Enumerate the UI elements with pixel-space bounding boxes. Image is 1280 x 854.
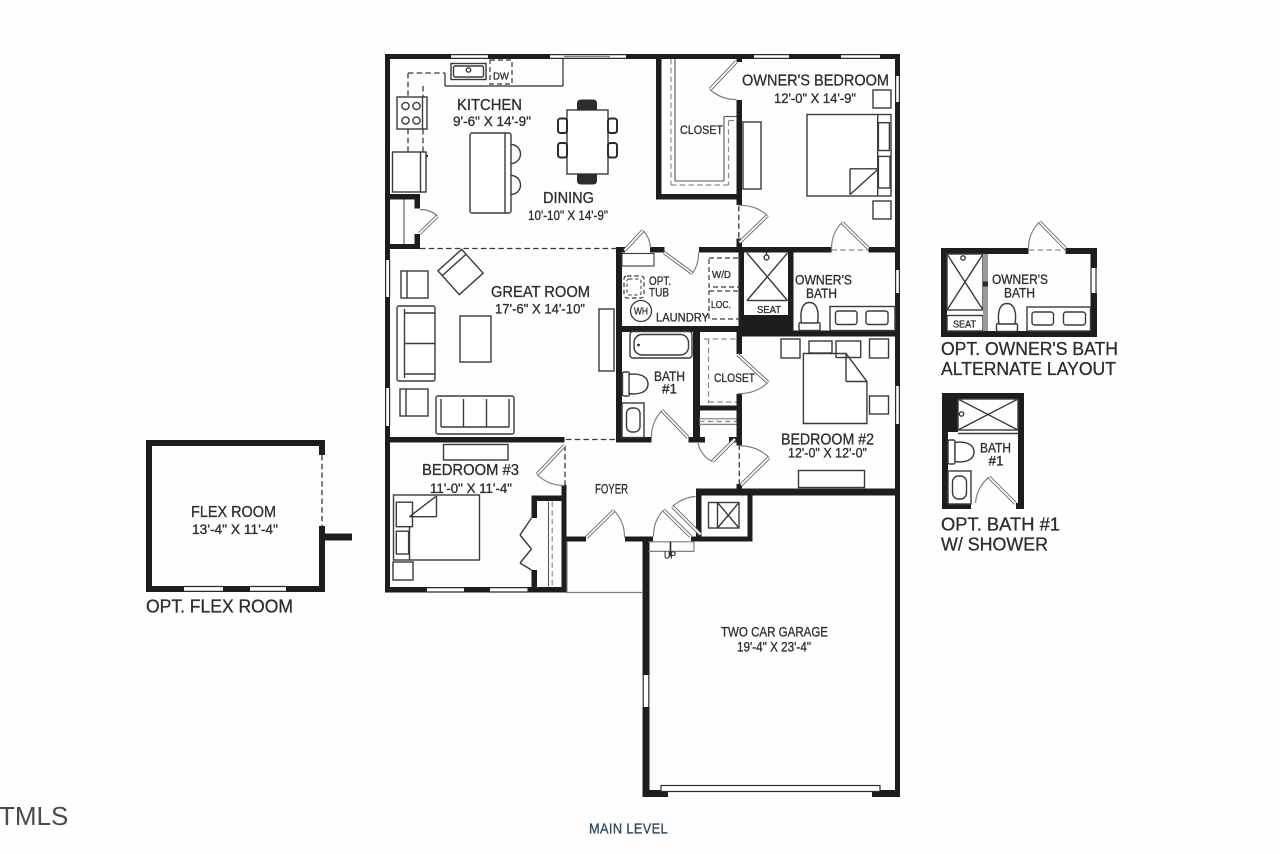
- svg-text:SEAT: SEAT: [953, 320, 976, 331]
- svg-text:BATH: BATH: [806, 286, 837, 301]
- svg-text:17'-6" X 14'-10": 17'-6" X 14'-10": [495, 302, 585, 317]
- svg-text:ALTERNATE LAYOUT: ALTERNATE LAYOUT: [941, 358, 1116, 379]
- svg-text:WH: WH: [634, 307, 648, 318]
- svg-text:W/D: W/D: [712, 270, 731, 281]
- svg-text:TWO CAR GARAGE: TWO CAR GARAGE: [721, 625, 828, 640]
- svg-text:GREAT ROOM: GREAT ROOM: [491, 284, 590, 301]
- svg-text:SEAT: SEAT: [757, 305, 781, 316]
- svg-text:FOYER: FOYER: [595, 482, 628, 497]
- svg-text:OWNER'S BEDROOM: OWNER'S BEDROOM: [742, 73, 889, 90]
- svg-text:MAIN LEVEL: MAIN LEVEL: [589, 822, 668, 838]
- svg-text:19'-4" X 23'-4": 19'-4" X 23'-4": [737, 640, 811, 655]
- svg-text:UP: UP: [664, 551, 676, 562]
- svg-text:CLOSET: CLOSET: [680, 123, 724, 137]
- svg-text:W/ SHOWER: W/ SHOWER: [941, 534, 1048, 555]
- svg-text:#1: #1: [662, 382, 677, 397]
- svg-text:9'-6" X 14'-9": 9'-6" X 14'-9": [453, 114, 531, 129]
- svg-text:LAUNDRY: LAUNDRY: [656, 311, 709, 325]
- svg-text:BATH: BATH: [1004, 286, 1035, 301]
- svg-text:BEDROOM #3: BEDROOM #3: [422, 462, 519, 479]
- svg-text:TMLS: TMLS: [0, 801, 68, 831]
- svg-text:DW: DW: [493, 72, 510, 83]
- svg-text:LOC.: LOC.: [711, 300, 731, 311]
- svg-text:TUB: TUB: [649, 286, 669, 300]
- svg-text:10'-10" X 14'-9": 10'-10" X 14'-9": [528, 208, 608, 223]
- svg-text:CLOSET: CLOSET: [714, 371, 756, 385]
- svg-text:13'-4" X 11'-4": 13'-4" X 11'-4": [192, 522, 278, 537]
- svg-text:OPT. FLEX ROOM: OPT. FLEX ROOM: [146, 596, 293, 617]
- svg-text:OPT. BATH #1: OPT. BATH #1: [941, 514, 1060, 535]
- svg-text:12'-0" X 14'-9": 12'-0" X 14'-9": [774, 91, 856, 106]
- svg-text:OPT. OWNER'S BATH: OPT. OWNER'S BATH: [941, 338, 1118, 359]
- svg-text:KITCHEN: KITCHEN: [457, 97, 522, 114]
- svg-text:FLEX ROOM: FLEX ROOM: [191, 504, 276, 521]
- svg-text:11'-0" X 11'-4": 11'-0" X 11'-4": [430, 481, 512, 496]
- svg-text:#1: #1: [989, 454, 1004, 469]
- svg-text:12'-0" X 12'-0": 12'-0" X 12'-0": [788, 446, 867, 461]
- svg-text:DINING: DINING: [543, 190, 594, 207]
